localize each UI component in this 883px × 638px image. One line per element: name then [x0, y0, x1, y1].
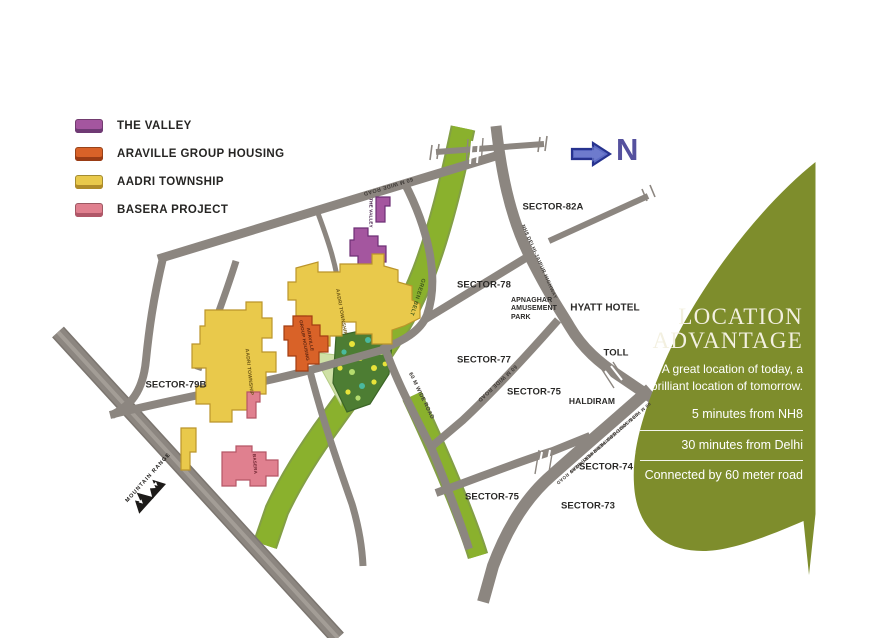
panel-divider — [640, 460, 803, 461]
haldiram-label: HALDIRAM — [569, 396, 615, 406]
panel-title-line2: ADVANTAGE — [640, 329, 803, 353]
sector-73-label: SECTOR-73 — [561, 501, 615, 512]
legend-item-aadri: AADRI TOWNSHIP — [75, 174, 284, 189]
north-label: N — [616, 132, 638, 168]
location-advantage-panel: LOCATION ADVANTAGE A great location of t… — [640, 305, 803, 483]
apnaghar-line1: APNAGHAR — [511, 297, 557, 305]
the-valley-site-label: THE VALLEY — [369, 198, 374, 228]
basera-swatch — [75, 203, 103, 217]
sector-79b-label: SECTOR-79B — [145, 380, 206, 391]
araville-swatch — [75, 147, 103, 161]
sector-74-label: SECTOR-74 — [579, 462, 633, 473]
panel-subtitle-line2: brilliant location of tomorrow. — [640, 378, 803, 395]
apnaghar-line2: AMUSEMENT — [511, 305, 557, 313]
panel-divider — [640, 430, 803, 431]
toll-label: TOLL — [603, 348, 628, 359]
hyatt-hotel-label: HYATT HOTEL — [570, 303, 639, 314]
the-valley-swatch — [75, 119, 103, 133]
legend: THE VALLEY ARAVILLE GROUP HOUSING AADRI … — [75, 118, 284, 230]
apnaghar-line3: PARK — [511, 314, 557, 322]
sector-75-label: SECTOR-75 — [507, 387, 561, 398]
legend-item-araville: ARAVILLE GROUP HOUSING — [75, 146, 284, 161]
legend-label: AADRI TOWNSHIP — [117, 176, 224, 188]
panel-title-line1: LOCATION — [640, 305, 803, 329]
legend-label: THE VALLEY — [117, 120, 192, 132]
aadri-swatch — [75, 175, 103, 189]
legend-item-the-valley: THE VALLEY — [75, 118, 284, 133]
panel-point-nh8: 5 minutes from NH8 — [640, 408, 803, 422]
north-arrow-icon — [572, 143, 610, 165]
sector-77-label: SECTOR-77 — [457, 355, 511, 366]
apnaghar-park-label: APNAGHAR AMUSEMENT PARK — [511, 297, 557, 322]
sector-82a-label: SECTOR-82A — [522, 202, 583, 213]
sector-75b-label: SECTOR-75 — [465, 492, 519, 503]
location-map-page: THE VALLEY ARAVILLE GROUP HOUSING AADRI … — [0, 0, 883, 638]
legend-label: BASERA PROJECT — [117, 204, 228, 216]
panel-point-delhi: 30 minutes from Delhi — [640, 439, 803, 453]
sector-78-label: SECTOR-78 — [457, 280, 511, 291]
panel-title: LOCATION ADVANTAGE — [640, 305, 803, 354]
panel-subtitle: A great location of today, a brilliant l… — [640, 361, 803, 395]
legend-item-basera: BASERA PROJECT — [75, 202, 284, 217]
panel-point-road: Connected by 60 meter road — [640, 469, 803, 483]
legend-label: ARAVILLE GROUP HOUSING — [117, 148, 284, 160]
panel-subtitle-line1: A great location of today, a — [640, 361, 803, 378]
